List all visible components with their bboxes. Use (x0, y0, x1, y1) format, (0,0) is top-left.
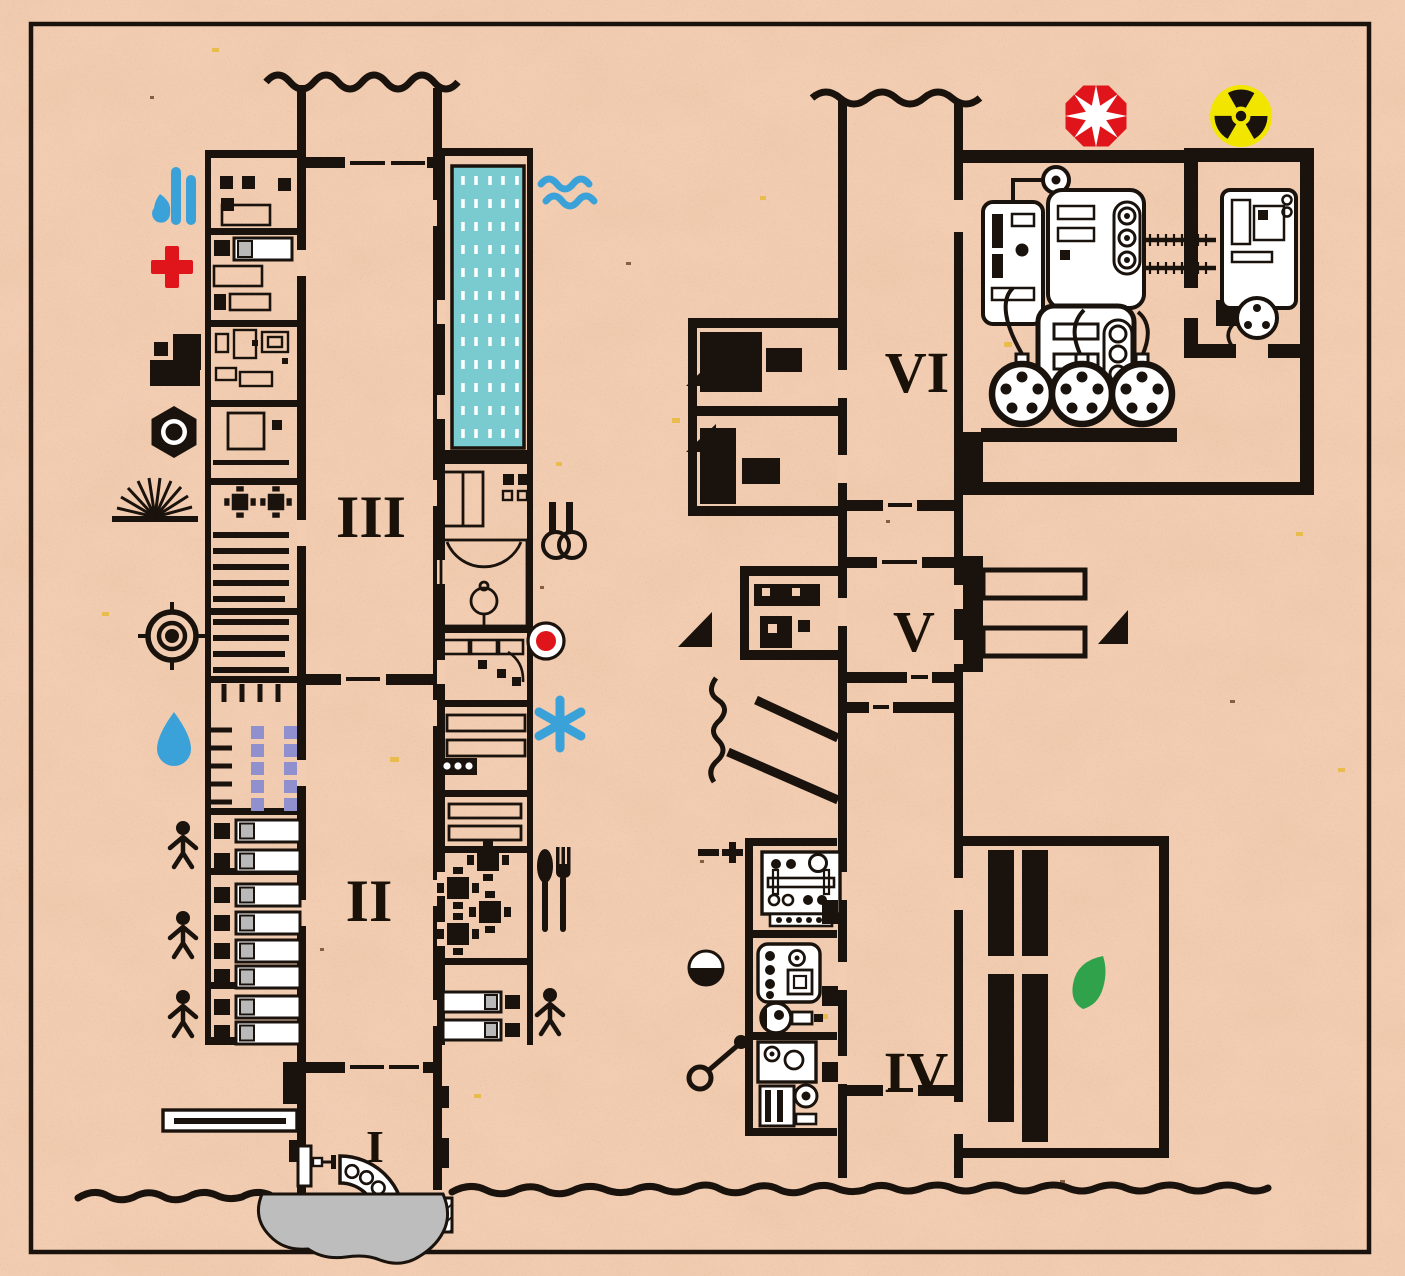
firing-point-icon (528, 623, 564, 659)
level-label-V: V (893, 599, 935, 664)
level-label-IV: IV (884, 1040, 949, 1105)
blast-star-icon (1065, 85, 1127, 147)
swimming-pool (452, 166, 524, 448)
radiation-icon (1210, 85, 1272, 147)
day-night-icon (689, 951, 723, 985)
level-label-I: I (366, 1121, 384, 1172)
level-label-II: II (346, 868, 393, 934)
bunker-map: III II I (0, 0, 1405, 1276)
generator-2 (758, 944, 823, 1033)
level-label-VI: VI (885, 340, 949, 405)
level-label-III: III (336, 484, 406, 550)
